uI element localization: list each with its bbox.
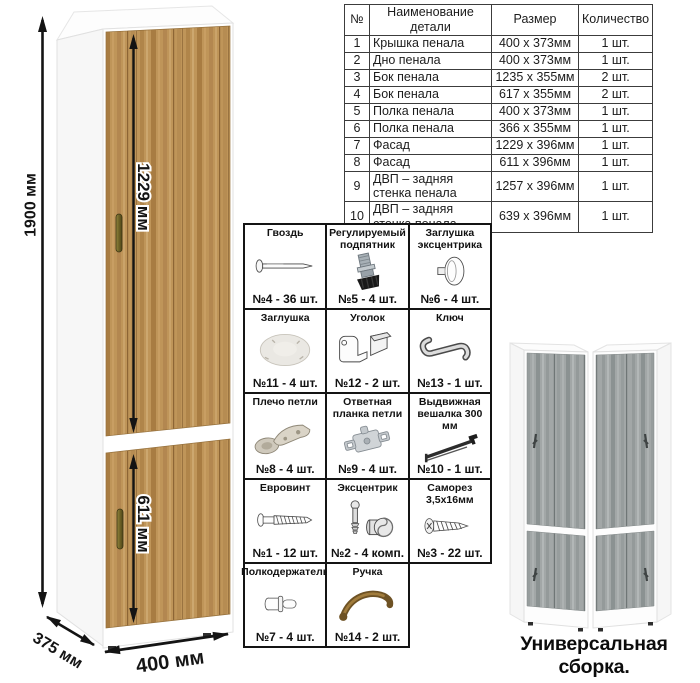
corner-bracket-icon [329,329,405,371]
pullout-hanger-icon [412,430,488,464]
hardware-cell: Эксцентрик №2 - 4 комп. [327,480,409,564]
empty-cell [410,564,492,648]
hinge-arm-icon [247,414,323,456]
part-size: 1235 х 355мм [492,69,579,86]
table-row: 6 Полка пенала 366 х 355мм 1 шт. [345,120,653,137]
hardware-title: Заглушка [261,312,310,324]
part-number: 5 [345,103,370,120]
part-number: 7 [345,137,370,154]
nail-icon [247,247,323,285]
part-size: 400 х 373мм [492,35,579,52]
hardware-title: Полкодержатель [241,566,329,578]
hardware-cell: Выдвижная вешалка 300 мм №10 - 1 шт. [410,394,492,480]
table-row: 7 Фасад 1229 х 396мм 1 шт. [345,137,653,154]
hardware-cell: Саморез 3,5х16мм №3 - 22 шт. [410,480,492,564]
part-size: 400 х 373мм [492,103,579,120]
part-number: 6 [345,120,370,137]
part-name: Крышка пенала [370,35,492,52]
hardware-cell: Ответная планка петли №9 - 4 шт. [327,394,409,480]
hardware-count: №1 - 12 шт. [252,546,318,561]
hardware-count: №14 - 2 шт. [335,630,401,645]
part-size: 1229 х 396мм [492,137,579,154]
col-header-name: Наименование детали [370,5,492,36]
hardware-cell: Регулируемый подпятник №5 - 4 шт. [327,225,409,310]
hardware-count: №3 - 22 шт. [417,546,483,561]
hardware-title: Ручка [352,566,382,578]
part-qty: 1 шт. [579,137,653,154]
upper-door [106,26,230,436]
shelf-pin-icon [247,587,323,621]
hardware-title: Заглушка эксцентрика [411,227,489,251]
parts-table: № Наименование детали Размер Количество … [344,4,653,233]
part-size: 1257 х 396мм [492,171,579,202]
hardware-count: №13 - 1 шт. [417,376,483,391]
part-qty: 2 шт. [579,86,653,103]
hardware-count: №7 - 4 шт. [256,630,315,645]
hardware-count: №2 - 4 комп. [331,546,404,561]
part-number: 9 [345,171,370,202]
upper-door-handle [116,214,122,252]
hardware-count: №5 - 4 шт. [338,292,397,307]
col-header-number: № [345,5,370,36]
part-number: 2 [345,52,370,69]
cover-cap-icon [247,329,323,371]
part-qty: 1 шт. [579,103,653,120]
hardware-cell: Заглушка №11 - 4 шт. [245,310,327,394]
hardware-cell: Гвоздь №4 - 36 шт. [245,225,327,310]
upper-door-dim-label: 1229 мм [134,163,153,231]
hardware-count: №8 - 4 шт. [256,462,315,477]
hardware-title: Ключ [436,312,464,324]
part-size: 639 х 396мм [492,202,579,233]
lower-door [106,439,230,628]
euro-screw-icon [247,502,323,538]
lower-door-dim-label: 611 мм [134,495,153,552]
hardware-title: Регулируемый подпятник [328,227,406,251]
handle-icon [329,583,405,625]
col-header-qty: Количество [579,5,653,36]
hardware-title: Гвоздь [267,227,304,239]
part-name: Бок пенала [370,69,492,86]
part-name: ДВП – задняя стенка пенала [370,171,492,202]
part-qty: 1 шт. [579,154,653,171]
hinge-plate-icon [329,421,405,461]
table-row: 4 Бок пенала 617 х 355мм 2 шт. [345,86,653,103]
height-dim-label: 1900 мм [23,173,40,237]
lower-door-handle [117,509,123,549]
hardware-title: Саморез 3,5х16мм [411,482,489,506]
hardware-title: Ответная планка петли [328,396,406,420]
part-size: 366 х 355мм [492,120,579,137]
part-size: 617 х 355мм [492,86,579,103]
cam-cap-icon [412,252,488,292]
part-size: 611 х 396мм [492,154,579,171]
universal-assembly-caption: Универсальная сборка. [488,633,700,679]
main-cabinet [57,6,233,650]
cam-lock-icon [329,499,405,541]
assembly-instruction-sheet: 1900 мм 1229 мм 611 мм 375 мм [0,0,700,683]
table-row: 1 Крышка пенала 400 х 373мм 1 шт. [345,35,653,52]
col-header-size: Размер [492,5,579,36]
hardware-cell: Ручка №14 - 2 шт. [327,564,409,648]
part-qty: 1 шт. [579,120,653,137]
table-row: 3 Бок пенала 1235 х 355мм 2 шт. [345,69,653,86]
hardware-count: №4 - 36 шт. [252,292,318,307]
hardware-count: №9 - 4 шт. [338,462,397,477]
table-row: 9 ДВП – задняя стенка пенала 1257 х 396м… [345,171,653,202]
hardware-title: Уголок [350,312,385,324]
part-qty: 1 шт. [579,35,653,52]
hardware-count: №12 - 2 шт. [335,376,401,391]
part-name: Полка пенала [370,103,492,120]
variant-cabinet-left [510,343,588,632]
hardware-cell: Ключ №13 - 1 шт. [410,310,492,394]
width-dim-label: 400 мм [135,646,206,677]
part-number: 3 [345,69,370,86]
hardware-title: Евровинт [260,482,311,494]
hardware-count: №10 - 1 шт. [417,462,483,477]
part-name: Фасад [370,154,492,171]
hardware-cell: Плечо петли №8 - 4 шт. [245,394,327,480]
hardware-cell: Заглушка эксцентрика №6 - 4 шт. [410,225,492,310]
dimension-height: 1900 мм [23,16,47,608]
hardware-cell: Евровинт №1 - 12 шт. [245,480,327,564]
hardware-count: №11 - 4 шт. [253,376,318,391]
adjustable-foot-icon [329,252,405,292]
part-name: Бок пенала [370,86,492,103]
hardware-cell: Уголок №12 - 2 шт. [327,310,409,394]
part-name: Фасад [370,137,492,154]
variant-cabinet-right [593,343,671,632]
part-name: Полка пенала [370,120,492,137]
table-row: 8 Фасад 611 х 396мм 1 шт. [345,154,653,171]
part-qty: 2 шт. [579,69,653,86]
hardware-cell: Полкодержатель №7 - 4 шт. [245,564,327,648]
part-qty: 1 шт. [579,171,653,202]
cabinet-side-panel [57,29,103,646]
table-row: 2 Дно пенала 400 х 373мм 1 шт. [345,52,653,69]
hardware-count: №6 - 4 шт. [420,292,479,307]
part-number: 8 [345,154,370,171]
hardware-title: Выдвижная вешалка 300 мм [411,396,489,432]
hardware-grid: Гвоздь №4 - 36 шт. Регулируемый подпятни… [243,223,492,648]
part-qty: 1 шт. [579,202,653,233]
part-number: 1 [345,35,370,52]
part-name: Дно пенала [370,52,492,69]
hex-key-icon [412,329,488,371]
table-row: 5 Полка пенала 400 х 373мм 1 шт. [345,103,653,120]
self-tapping-screw-icon [412,509,488,543]
part-size: 400 х 373мм [492,52,579,69]
part-qty: 1 шт. [579,52,653,69]
hardware-title: Плечо петли [253,396,318,408]
table-header-row: № Наименование детали Размер Количество [345,5,653,36]
part-number: 4 [345,86,370,103]
hardware-title: Эксцентрик [337,482,397,494]
